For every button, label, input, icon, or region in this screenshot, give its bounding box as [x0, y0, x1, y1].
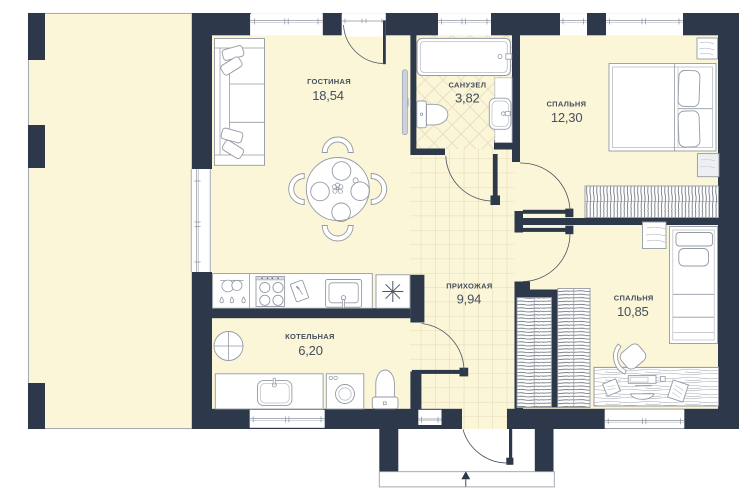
- svg-text:САНУЗЕЛ: САНУЗЕЛ: [449, 80, 487, 89]
- svg-text:ПРИХОЖАЯ: ПРИХОЖАЯ: [446, 282, 492, 291]
- svg-text:10,85: 10,85: [617, 304, 649, 319]
- svg-text:СПАЛЬНЯ: СПАЛЬНЯ: [614, 293, 654, 302]
- svg-text:18,54: 18,54: [312, 88, 344, 103]
- svg-text:СПАЛЬНЯ: СПАЛЬНЯ: [546, 100, 586, 109]
- svg-text:9,94: 9,94: [457, 291, 482, 306]
- svg-text:12,30: 12,30: [551, 110, 583, 125]
- svg-text:КОТЕЛЬНАЯ: КОТЕЛЬНАЯ: [285, 332, 335, 341]
- svg-text:3,82: 3,82: [455, 91, 480, 106]
- svg-text:6,20: 6,20: [298, 343, 323, 358]
- svg-text:ГОСТИНАЯ: ГОСТИНАЯ: [307, 77, 351, 86]
